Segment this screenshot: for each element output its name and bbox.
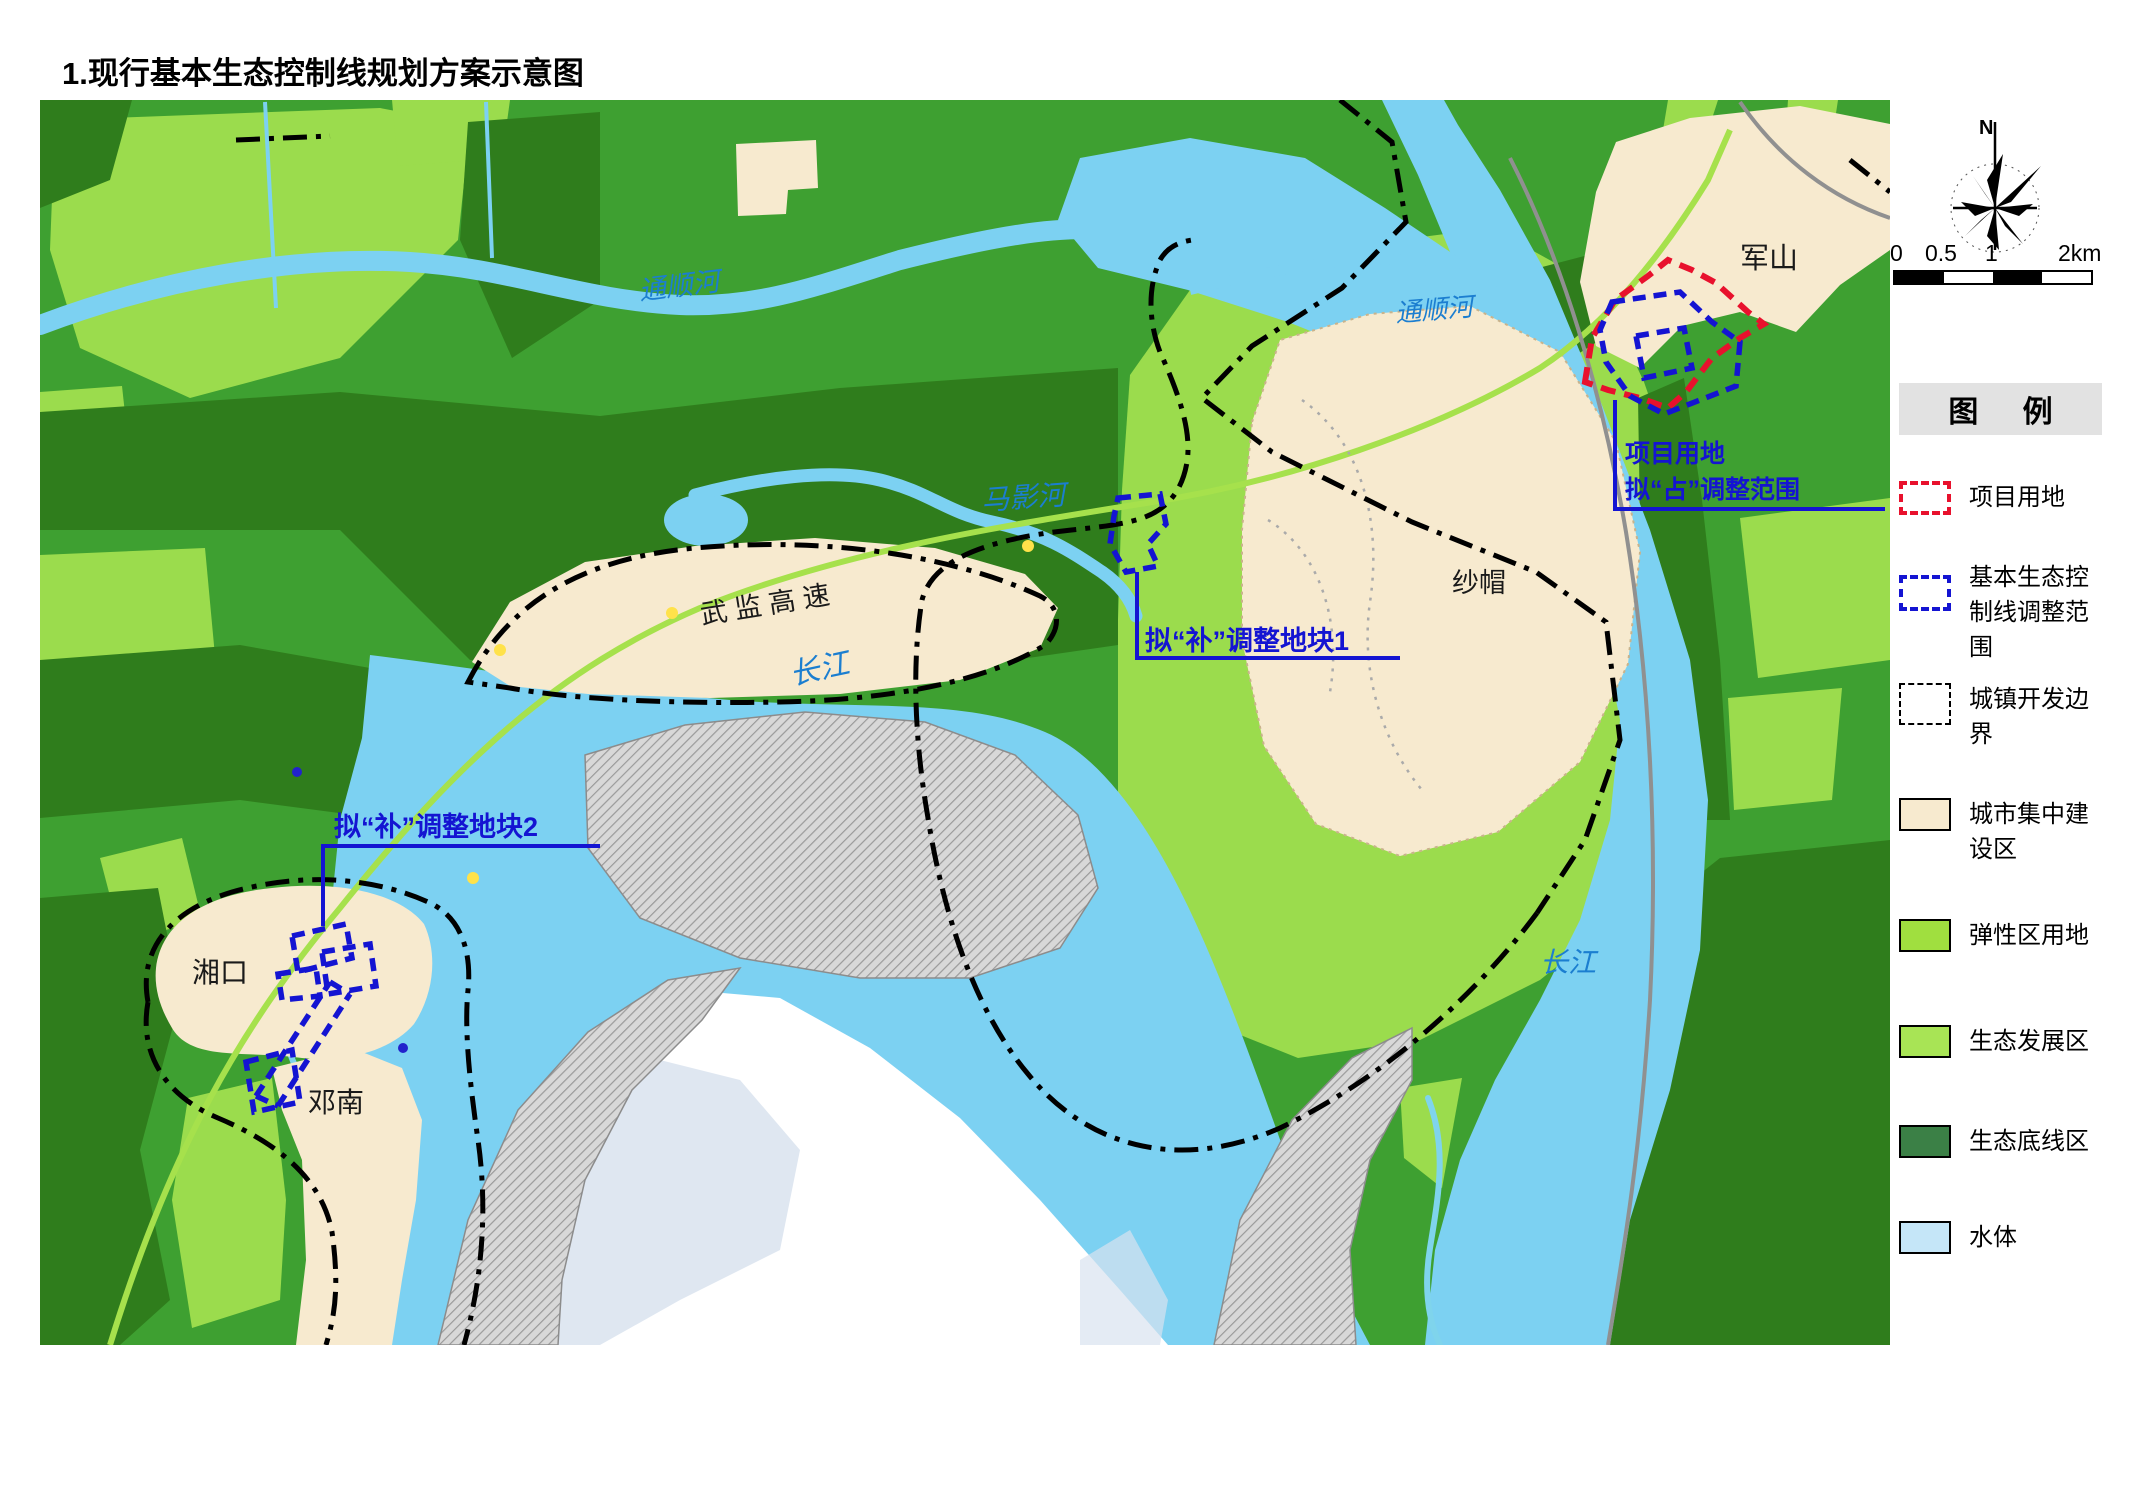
scale-bar: 0 0.5 1 2km — [1890, 240, 2105, 290]
scale-tick-2km: 2km — [2058, 240, 2101, 267]
legend-item-eco-baseline: 生态底线区 — [1899, 1125, 2131, 1160]
place-label-junshan: 军山 — [1740, 243, 1798, 275]
page-title: 1.现行基本生态控制线规划方案示意图 — [62, 48, 584, 93]
blue-dot — [292, 767, 302, 777]
legend-item-label: 项目用地 — [1969, 481, 2101, 516]
place-label-shamao: 纱帽 — [1452, 568, 1506, 598]
yellow-dot — [494, 644, 506, 656]
legend-item-label: 水体 — [1969, 1221, 2101, 1256]
legend-header: 图 例 — [1899, 383, 2102, 435]
legend-item-flexible-zone: 弹性区用地 — [1899, 919, 2131, 954]
map-canvas: 通顺河 通顺河 马影河 长江 长江 军山 纱帽 湘口 邓南 武 监 高 速 拟“… — [40, 100, 1890, 1345]
place-label-dengnan: 邓南 — [308, 1087, 364, 1118]
legend-item-label: 城市集中建设区 — [1969, 798, 2101, 868]
scale-tick-05: 0.5 — [1925, 240, 1957, 267]
water-fill-swatch — [1899, 1221, 1951, 1254]
legend-item-water: 水体 — [1899, 1221, 2131, 1256]
annotation-plot2: 拟“补”调整地块2 — [334, 812, 538, 842]
legend-item-urban-construction: 城市集中建设区 — [1899, 798, 2131, 868]
yellow-dot — [467, 872, 479, 884]
legend-item-label: 生态发展区 — [1969, 1025, 2101, 1060]
yellow-dot — [666, 607, 678, 619]
river-label-changjiang-2: 长江 — [1540, 947, 1599, 978]
legend-item-label: 城镇开发边界 — [1969, 683, 2101, 753]
beige-fill-swatch — [1899, 798, 1951, 831]
compass-north-label: N — [1979, 117, 1993, 139]
legend-item-label: 弹性区用地 — [1969, 919, 2101, 954]
blue-dashed-outline-swatch — [1899, 575, 1951, 611]
river-label-mayinghe: 马影河 — [980, 479, 1071, 516]
planning-map: 通顺河 通顺河 马影河 长江 长江 军山 纱帽 湘口 邓南 武 监 高 速 拟“… — [40, 100, 1890, 1345]
annotation-plot1: 拟“补”调整地块1 — [1145, 626, 1349, 656]
darkgreen-fill-swatch — [1899, 1125, 1951, 1158]
red-dashed-outline-swatch — [1899, 481, 1951, 515]
legend-item-urban-boundary: 城镇开发边界 — [1899, 683, 2131, 753]
scale-segment — [1993, 272, 2042, 283]
scale-bar-strip — [1893, 270, 2093, 285]
page: 1.现行基本生态控制线规划方案示意图 — [0, 0, 2131, 1509]
scale-segment — [2042, 272, 2091, 283]
annotation-project-line1: 项目用地 — [1625, 440, 1725, 468]
legend-item-project-site: 项目用地 — [1899, 481, 2131, 516]
yellow-dot — [1022, 540, 1034, 552]
legend-item-eco-adjustment: 基本生态控制线调整范围 — [1899, 561, 2131, 665]
scale-segment — [1944, 272, 1993, 283]
blue-dot — [398, 1043, 408, 1053]
dashdot-outline-swatch — [1899, 683, 1951, 725]
green-fill-swatch — [1899, 919, 1951, 952]
scale-tick-0: 0 — [1890, 240, 1903, 267]
legend-item-label: 生态底线区 — [1969, 1125, 2101, 1160]
compass-rose: N — [1945, 110, 2045, 255]
legend-item-eco-development: 生态发展区 — [1899, 1025, 2131, 1060]
scale-tick-1: 1 — [1985, 240, 1998, 267]
annotation-project-line2: 拟“占”调整范围 — [1625, 476, 1800, 504]
legend-item-label: 基本生态控制线调整范围 — [1969, 561, 2101, 665]
place-label-xiangkou: 湘口 — [192, 957, 248, 988]
scale-segment — [1895, 272, 1944, 283]
map-margin-panel: N 0 0.5 1 2km — [1890, 100, 2131, 1400]
lightgreen-fill-swatch — [1899, 1025, 1951, 1058]
